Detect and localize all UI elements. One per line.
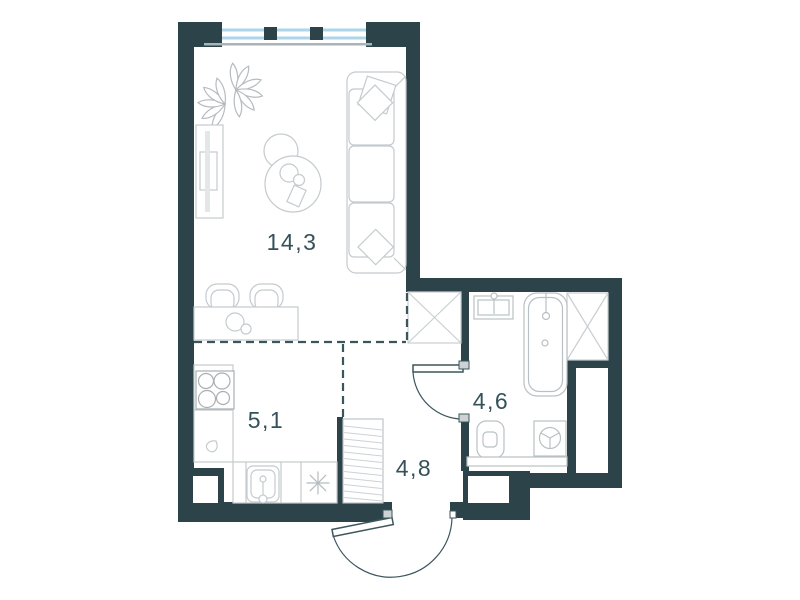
bathtub-icon: [524, 293, 567, 396]
room-label-kitchen: 5,1: [248, 407, 284, 433]
wall-bath-top: [406, 278, 622, 292]
sofa-icon: [347, 72, 406, 273]
wall-left: [178, 22, 194, 522]
toilet-icon: [477, 421, 504, 458]
bathroom-door-icon: [413, 361, 469, 422]
kettle-icon: [206, 441, 217, 452]
wall-bath-left-upper-stub: [461, 292, 469, 362]
wardrobe-icon: [343, 419, 383, 503]
stove-icon: [196, 371, 234, 409]
wall-niche-strip: [567, 368, 576, 473]
wall-living-right: [406, 22, 420, 292]
room-label-hallway: 4,8: [396, 455, 432, 481]
window-icon: [204, 27, 372, 46]
plant-icon: [198, 63, 263, 130]
wall-right: [608, 292, 622, 488]
washing-machine-icon: [534, 421, 566, 456]
bathroom-fixtures: [467, 293, 567, 466]
niche-bottom-left: [193, 476, 218, 503]
tv-screen: [205, 131, 210, 212]
room-label-bathroom: 4,6: [473, 388, 509, 414]
window-glass-outer: [222, 29, 366, 32]
window-mullion: [264, 27, 277, 40]
shelf-icon: [467, 457, 567, 466]
vent-shaft-icon: [408, 292, 461, 343]
hob-icon: [307, 472, 330, 495]
dining-table-icon: [194, 307, 298, 340]
window-sill: [204, 43, 372, 46]
wall-wardrobe-stub: [337, 417, 343, 503]
wall-bottom-right-band: [527, 473, 622, 488]
floor-plan: 14,3 5,1 4,6 4,8: [0, 0, 800, 600]
living-room-furniture: [194, 63, 406, 340]
tv-stand-icon: [196, 125, 223, 218]
wall-band-below-shaft: [567, 360, 608, 369]
niche-right: [576, 368, 608, 473]
kitchen-sink-icon: [247, 466, 279, 503]
washbasin-icon: [474, 293, 513, 319]
niche-bath-bottom: [468, 476, 509, 503]
room-label-living: 14,3: [267, 229, 318, 255]
window-mullion: [310, 27, 323, 40]
vent-shaft-icon: [567, 293, 608, 360]
window-glass-inner: [222, 37, 366, 40]
coffee-table-icon: [264, 134, 321, 212]
